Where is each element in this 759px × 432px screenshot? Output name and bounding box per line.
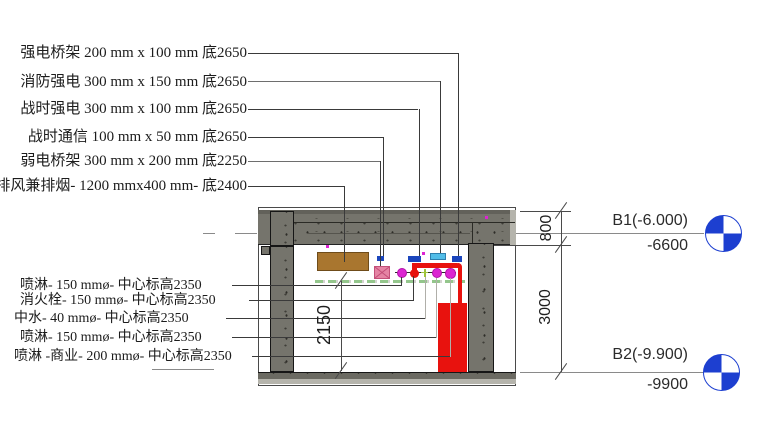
leader-line	[252, 356, 451, 357]
exhaust-duct	[317, 252, 369, 271]
leader-line	[248, 109, 418, 110]
left-wall	[270, 246, 294, 373]
annotation-exhaust-duct: 排风兼排烟- 1200 mmx400 mm- 底2400	[0, 178, 247, 194]
leader-drop	[419, 109, 420, 256]
dim-text-3000: 3000	[537, 287, 553, 327]
annotation-fire-power-tray: 消防强电 300 mm x 150 mm 底2650	[20, 74, 247, 90]
annotation-wartime-power-tray: 战时强电 300 mm x 100 mm 底2650	[20, 101, 247, 117]
annotation-sprinkler-2: 喷淋- 150 mmø- 中心标高2350	[20, 330, 202, 345]
fire-pipe-drop	[458, 263, 463, 303]
leader-line	[232, 337, 437, 338]
leader-drop	[383, 137, 384, 256]
annotation-reclaimed-water: 中水- 40 mmø- 中心标高2350	[14, 311, 189, 326]
leader-drop	[344, 186, 345, 262]
cable-tray-fire-power	[430, 253, 446, 260]
annotation-fire-hydrant: 消火栓- 150 mmø- 中心标高2350	[20, 293, 216, 308]
sprinkler-pipe-1	[397, 268, 407, 278]
top-slab-edge	[258, 210, 516, 214]
section-drawing: 800 3000 2150 B1(-6.000) -6600 B2(-9.900…	[0, 0, 759, 432]
dim-text-2150: 2150	[314, 303, 332, 347]
left-beam-section	[270, 211, 295, 246]
leader-drop	[458, 53, 459, 256]
sprinkler-pipe-2	[432, 268, 442, 278]
annotation-weak-current-tray: 弱电桥架 300 mm x 200 mm 底2250	[20, 153, 247, 169]
slab-beam-line	[307, 233, 470, 234]
right-wall	[468, 243, 494, 372]
leader-drop	[380, 161, 381, 266]
leader-drop	[401, 277, 402, 286]
slab-cut-strip	[510, 210, 517, 245]
top-slab	[258, 210, 516, 245]
cable-tray-strong-power	[452, 256, 462, 262]
annotation-wartime-comm-tray: 战时通信 100 mm x 50 mm 底2650	[28, 129, 247, 145]
sprinkler-marker	[422, 252, 425, 255]
dim-text-800: 800	[538, 208, 554, 248]
slab-beam-line	[294, 222, 515, 223]
reclaimed-water-pipe	[421, 272, 428, 274]
level-line-b2	[520, 372, 704, 373]
cable-tray-weak-current	[374, 266, 390, 279]
sprinkler-marker	[326, 245, 329, 248]
level-b1-elevation: -6600	[647, 237, 688, 255]
label-underline	[152, 369, 214, 370]
slab-step-line	[472, 222, 473, 245]
leader-line	[249, 300, 413, 301]
leader-drop	[413, 276, 414, 301]
level-line-b1	[235, 233, 257, 234]
leader-drop	[436, 278, 437, 338]
leader-drop	[425, 277, 426, 319]
leader-line	[248, 161, 380, 162]
level-line-b1	[203, 233, 215, 234]
level-target-icon	[703, 354, 740, 391]
floor-screed	[258, 379, 516, 384]
annotation-sprinkler-commercial: 喷淋 -商业- 200 mmø- 中心标高2350	[14, 349, 232, 364]
dimension-line-right	[561, 211, 562, 372]
annotation-sprinkler-1: 喷淋- 150 mmø- 中心标高2350	[20, 278, 202, 293]
level-line-b1	[505, 233, 704, 234]
fire-hydrant-riser	[438, 303, 467, 372]
leader-line	[248, 53, 458, 54]
level-b1-label: B1(-6.000)	[612, 212, 688, 230]
leader-drop	[440, 81, 441, 253]
level-b2-label: B2(-9.900)	[612, 346, 688, 364]
sprinkler-marker	[485, 216, 488, 219]
leader-line	[248, 81, 440, 82]
floor-slab	[258, 372, 516, 380]
leader-line	[248, 186, 344, 187]
dimension-line-clear	[341, 281, 342, 371]
annotation-strong-power-tray: 强电桥架 200 mm x 100 mm 底2650	[20, 45, 247, 61]
level-target-icon	[705, 215, 742, 252]
leader-line	[232, 285, 401, 286]
sprinkler-pipe-commercial	[445, 268, 456, 279]
cable-tray-wartime-power	[408, 256, 421, 262]
leader-line	[248, 137, 383, 138]
leader-drop	[450, 278, 451, 357]
level-b2-elevation: -9900	[647, 376, 688, 394]
